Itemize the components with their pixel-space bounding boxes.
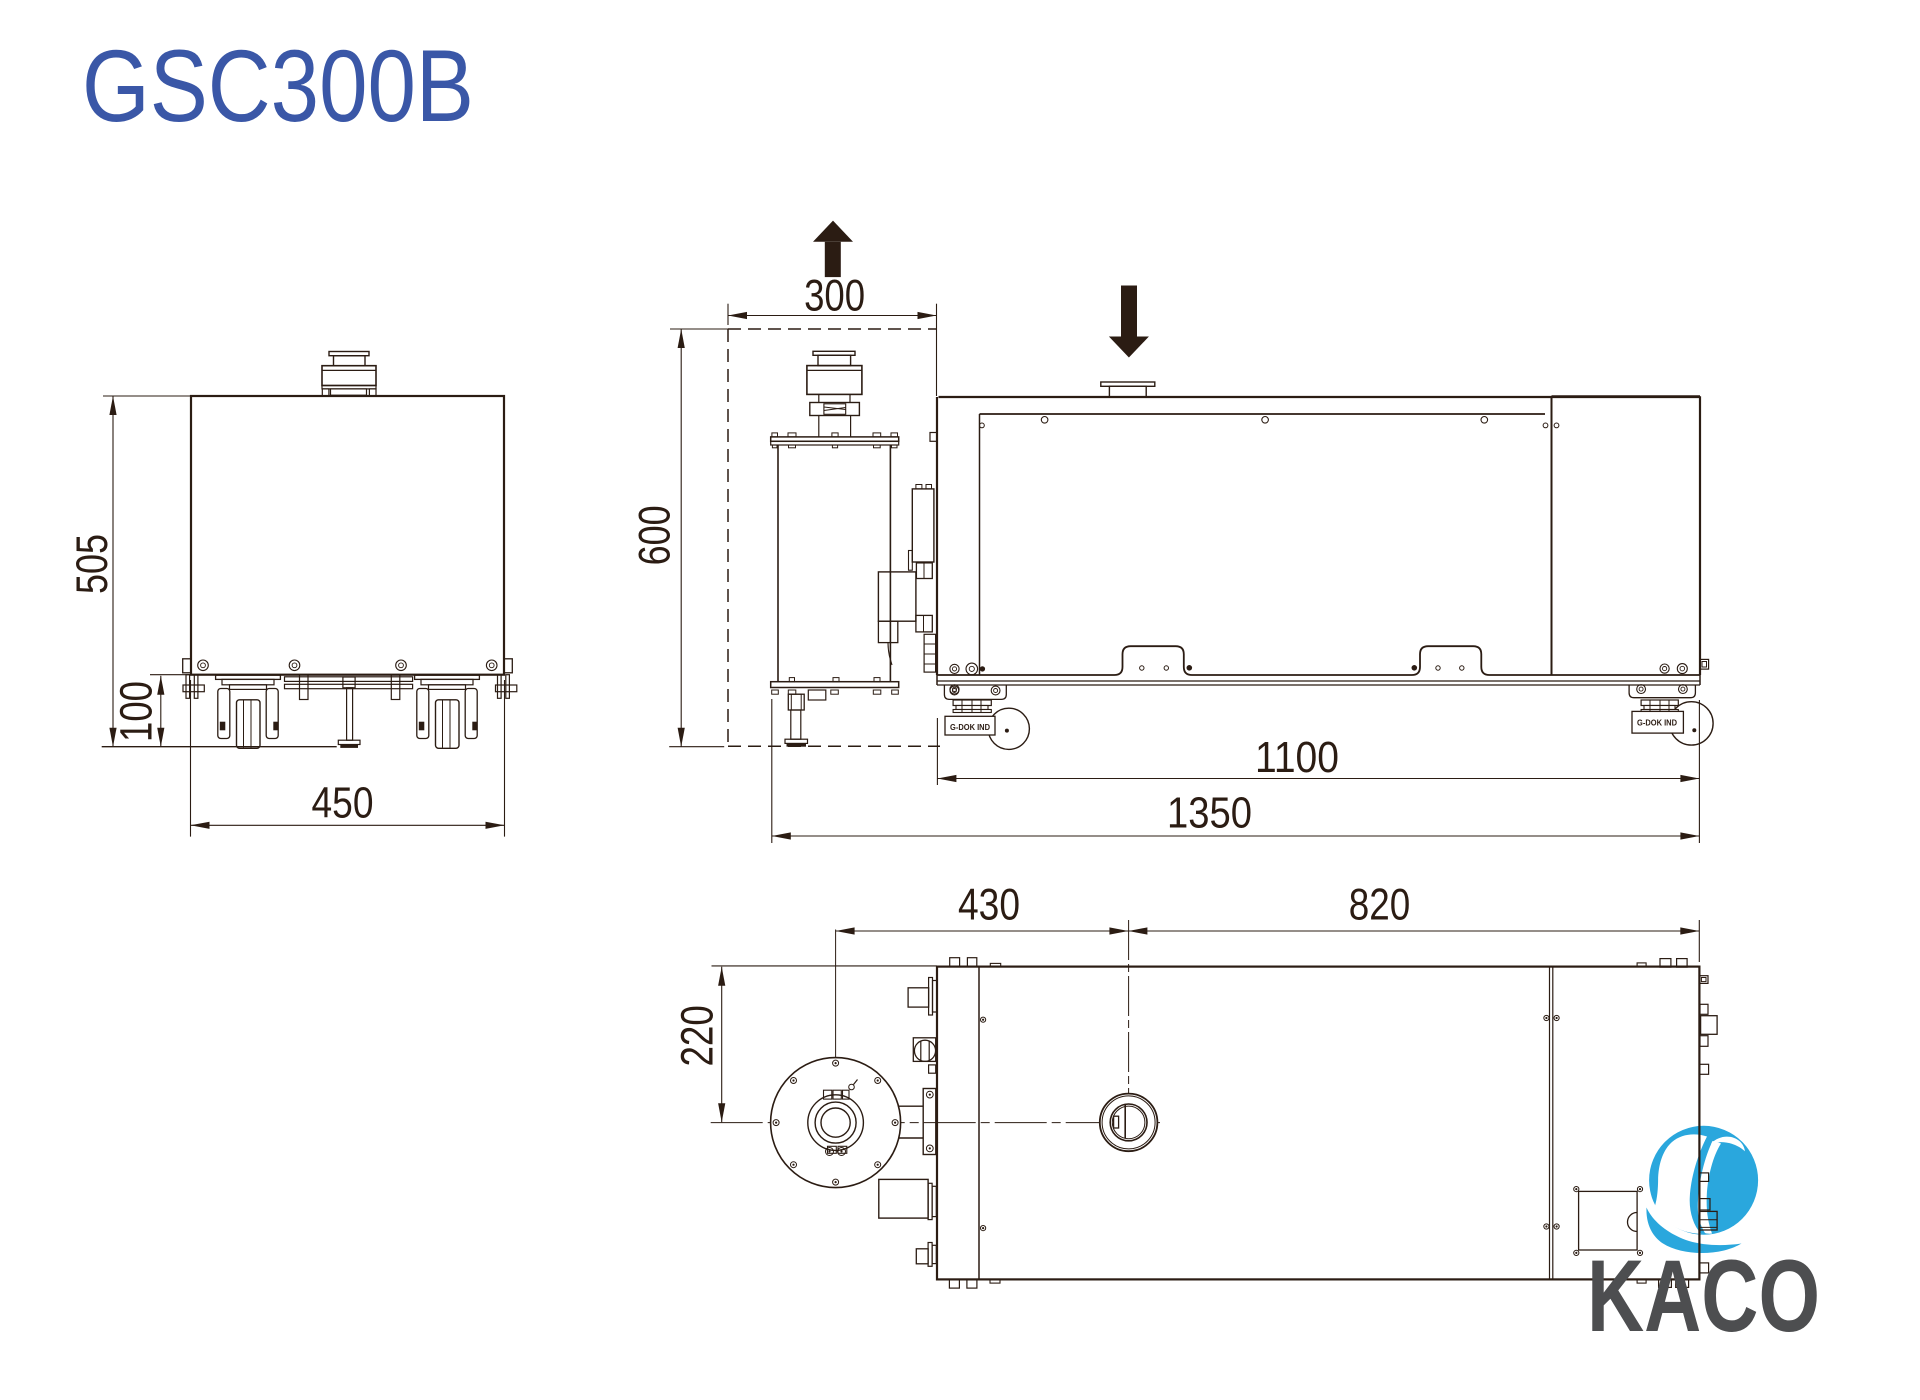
svg-text:GSC300B: GSC300B bbox=[82, 29, 474, 143]
svg-text:505: 505 bbox=[68, 534, 117, 594]
svg-text:430: 430 bbox=[958, 881, 1020, 930]
svg-text:300: 300 bbox=[804, 272, 865, 321]
svg-text:G-DOK IND: G-DOK IND bbox=[950, 722, 990, 732]
svg-text:1350: 1350 bbox=[1167, 789, 1252, 838]
svg-text:820: 820 bbox=[1349, 881, 1411, 930]
svg-text:450: 450 bbox=[312, 779, 374, 828]
svg-text:KACO: KACO bbox=[1587, 1239, 1820, 1353]
svg-text:G-DOK IND: G-DOK IND bbox=[1637, 718, 1677, 728]
svg-text:1100: 1100 bbox=[1255, 733, 1339, 782]
svg-text:600: 600 bbox=[630, 505, 679, 565]
svg-text:220: 220 bbox=[671, 1005, 722, 1066]
svg-text:100: 100 bbox=[111, 681, 162, 742]
